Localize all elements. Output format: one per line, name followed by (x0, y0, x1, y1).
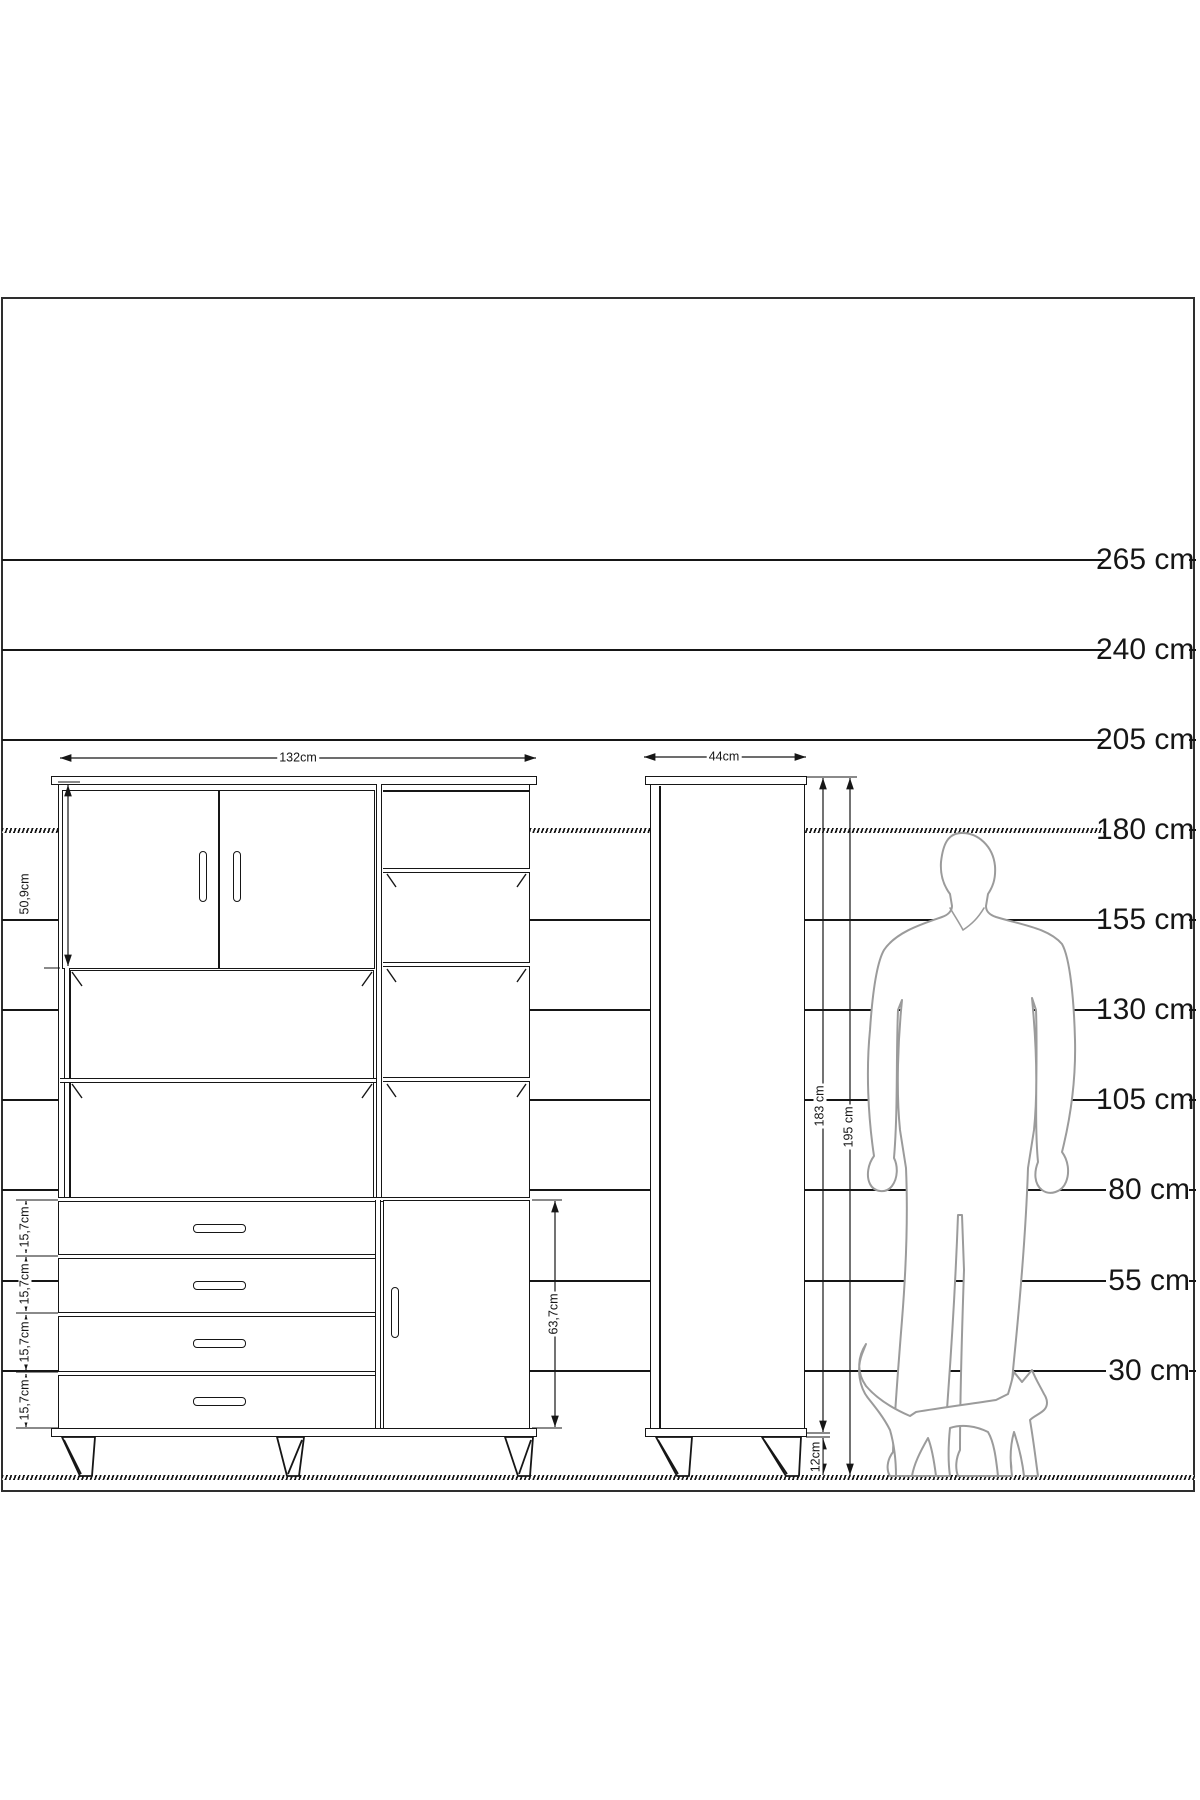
side-carcass (650, 784, 805, 1437)
dim-label-front-width: 132cm (277, 752, 319, 765)
side-door-edge-line (659, 786, 661, 1436)
scale-tick (1189, 1280, 1196, 1282)
shelf-line (383, 1077, 530, 1082)
drawer-handle-4 (193, 1397, 246, 1406)
scale-tick (1189, 1189, 1196, 1191)
dim-label-drawer-4: 15,7cm (19, 1378, 32, 1423)
front-door-left (62, 790, 219, 969)
floor-line (2, 1475, 1195, 1480)
scale-label: 55 cm (1096, 1266, 1190, 1296)
scale-tick (1189, 559, 1196, 561)
open-compartment-wide-2 (70, 1082, 374, 1199)
scale-label: 130 cm (1096, 995, 1190, 1025)
scale-label: 30 cm (1096, 1356, 1190, 1386)
door-left-handle (199, 851, 207, 902)
scale-tick (1189, 1009, 1196, 1011)
dim-label-drawer-2: 15,7cm (19, 1262, 32, 1307)
scale-tick (1189, 1370, 1196, 1372)
dim-label-leg-height: 12cm (810, 1440, 823, 1475)
scale-tick (1189, 649, 1196, 651)
front-door-right (219, 790, 375, 969)
right-column-top-line (383, 790, 530, 792)
drawing-canvas: 265 cm 240 cm 205 cm 180 cm 155 cm 130 c… (0, 0, 1200, 1800)
dim-label-drawer-3: 15,7cm (19, 1320, 32, 1365)
scale-label: 205 cm (1096, 725, 1190, 755)
scale-label: 155 cm (1096, 905, 1190, 935)
lower-divider (375, 1200, 381, 1429)
scale-tick (1189, 829, 1196, 831)
side-bottom-board (645, 1428, 807, 1437)
front-bottom-board (51, 1428, 537, 1437)
scale-line (2, 649, 1106, 651)
open-compartment-wide-1 (70, 970, 374, 1080)
drawer-separator (58, 1371, 376, 1376)
shelf-line (383, 868, 530, 873)
door-right-handle (233, 851, 241, 902)
dim-label-door-height: 50,9cm (19, 872, 32, 917)
dim-label-lower-section: 63,7cm (548, 1292, 561, 1337)
scale-line (2, 739, 1106, 741)
scale-line (2, 559, 1106, 561)
scale-label: 240 cm (1096, 635, 1190, 665)
left-inner-wall (64, 968, 70, 1201)
shelf-line (383, 962, 530, 967)
drawer-handle-1 (193, 1224, 246, 1233)
scale-tick (1189, 739, 1196, 741)
dim-label-side-depth: 44cm (707, 751, 742, 764)
drawer-separator (58, 1312, 376, 1317)
scale-label: 80 cm (1096, 1175, 1190, 1205)
drawer-handle-2 (193, 1281, 246, 1290)
scale-tick (1189, 919, 1196, 921)
lower-door-handle (391, 1287, 399, 1338)
center-divider (376, 784, 382, 1201)
dim-label-body-height: 183 cm (814, 1084, 827, 1129)
scale-label: 105 cm (1096, 1085, 1190, 1115)
lower-door (383, 1200, 530, 1429)
scale-tick (1189, 1099, 1196, 1101)
scale-label: 180 cm (1096, 815, 1190, 845)
drawer-handle-3 (193, 1339, 246, 1348)
dim-label-drawer-1: 15,7cm (19, 1205, 32, 1250)
scale-label: 265 cm (1096, 545, 1190, 575)
drawer-separator (58, 1254, 376, 1259)
dim-label-total-height: 195 cm (843, 1105, 856, 1150)
